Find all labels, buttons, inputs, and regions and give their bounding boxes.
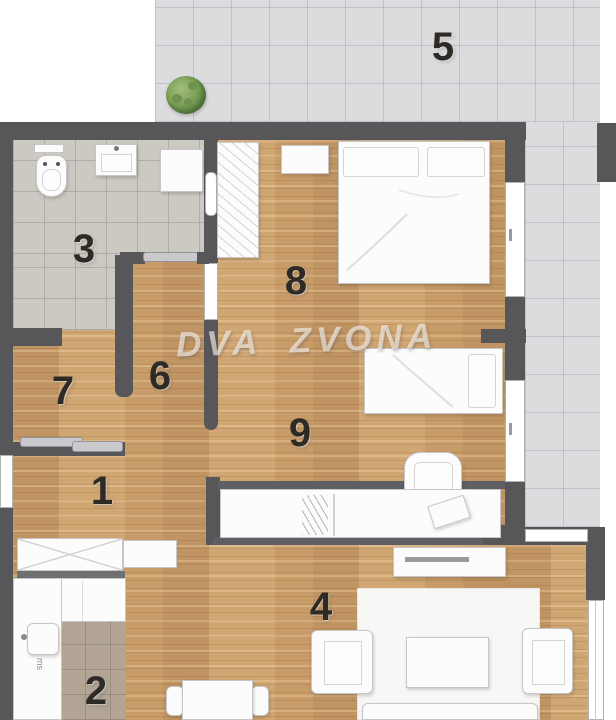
armchair-left bbox=[311, 630, 373, 694]
left-wall-upper bbox=[0, 140, 13, 455]
bedroom8-door bbox=[204, 263, 218, 320]
radiator-hatch bbox=[302, 495, 328, 535]
wardrobe bbox=[217, 142, 259, 258]
room-label-bathroom: 3 bbox=[73, 229, 95, 269]
toilet-icon bbox=[36, 155, 67, 197]
room-label-kitchen: 2 bbox=[85, 671, 107, 711]
sofa bbox=[362, 703, 538, 720]
armchair-right bbox=[522, 628, 573, 694]
dining-table bbox=[182, 680, 253, 720]
room-label-terrace: 5 bbox=[432, 27, 454, 67]
wall-hall-room7 bbox=[115, 255, 133, 397]
toilet-detail bbox=[56, 162, 60, 166]
dresser bbox=[281, 145, 329, 174]
outer-wall-fragment bbox=[597, 123, 616, 182]
bathroom-southwest-wall bbox=[13, 328, 62, 346]
kitchen-faucet-icon bbox=[21, 634, 27, 640]
sink-basin bbox=[101, 154, 132, 172]
dining-chair bbox=[251, 686, 269, 716]
bathroom-south-wall-right bbox=[197, 252, 209, 264]
kitchen-sink-icon bbox=[27, 623, 59, 655]
living-right-window bbox=[588, 600, 604, 720]
toilet-tank-icon bbox=[34, 144, 64, 153]
tv-icon bbox=[405, 557, 469, 562]
floor-plan: ms 5 3 8 6 7 9 1 4 2 DVA ZVONA bbox=[0, 0, 616, 720]
toilet-detail bbox=[43, 162, 47, 166]
blanket-crease bbox=[365, 349, 502, 413]
sliding-door-leaf bbox=[72, 441, 123, 452]
armchair-cushion bbox=[532, 640, 565, 685]
balcony-door-bedroom8 bbox=[505, 182, 525, 297]
room-label-hall: 6 bbox=[149, 356, 171, 396]
coffee-table bbox=[406, 637, 489, 688]
bathroom-door-opening bbox=[143, 252, 199, 262]
sink-icon bbox=[95, 144, 137, 176]
window-glass-line bbox=[595, 601, 596, 720]
left-wall-lower bbox=[0, 508, 13, 720]
tv-sideboard bbox=[393, 547, 506, 577]
wall-bedroom8-bedroom9 bbox=[481, 329, 526, 343]
wall-bedroom9-living bbox=[213, 538, 505, 545]
room-label-living: 4 bbox=[310, 587, 332, 627]
appliance-label: ms bbox=[31, 658, 45, 692]
double-bed bbox=[338, 141, 490, 284]
toilet-bowl bbox=[42, 169, 61, 191]
terrace-floor-right bbox=[525, 122, 600, 527]
wall-niche bbox=[205, 172, 217, 216]
closet-cross-lines bbox=[18, 539, 122, 570]
armchair-cushion bbox=[324, 641, 362, 685]
counter-divider bbox=[82, 581, 83, 621]
top-wall bbox=[0, 122, 526, 140]
room-label-bedroom8: 8 bbox=[285, 261, 307, 301]
room-label-bedroom9: 9 bbox=[289, 413, 311, 453]
room-label-room7: 7 bbox=[52, 371, 74, 411]
faucet-icon bbox=[114, 146, 119, 151]
closet-front-wall-line bbox=[17, 571, 125, 578]
desk-divider-line bbox=[333, 494, 335, 536]
bathroom-floor-lower bbox=[13, 254, 120, 330]
hall-closet bbox=[17, 538, 123, 571]
washing-machine-icon bbox=[160, 149, 203, 192]
right-wall-segment-1 bbox=[505, 122, 525, 182]
room-label-hallway: 1 bbox=[91, 471, 113, 511]
right-wall-segment-4 bbox=[586, 545, 605, 600]
hall-closet-extension bbox=[123, 540, 177, 568]
blanket-crease bbox=[339, 142, 489, 283]
left-window bbox=[0, 455, 13, 508]
door-handle-icon bbox=[509, 423, 512, 435]
balcony-door-bedroom9 bbox=[505, 380, 525, 482]
door-handle-icon bbox=[509, 229, 512, 241]
terrace-floor-top bbox=[155, 0, 600, 122]
living-terrace-window bbox=[525, 529, 588, 542]
plant-icon bbox=[166, 76, 206, 114]
